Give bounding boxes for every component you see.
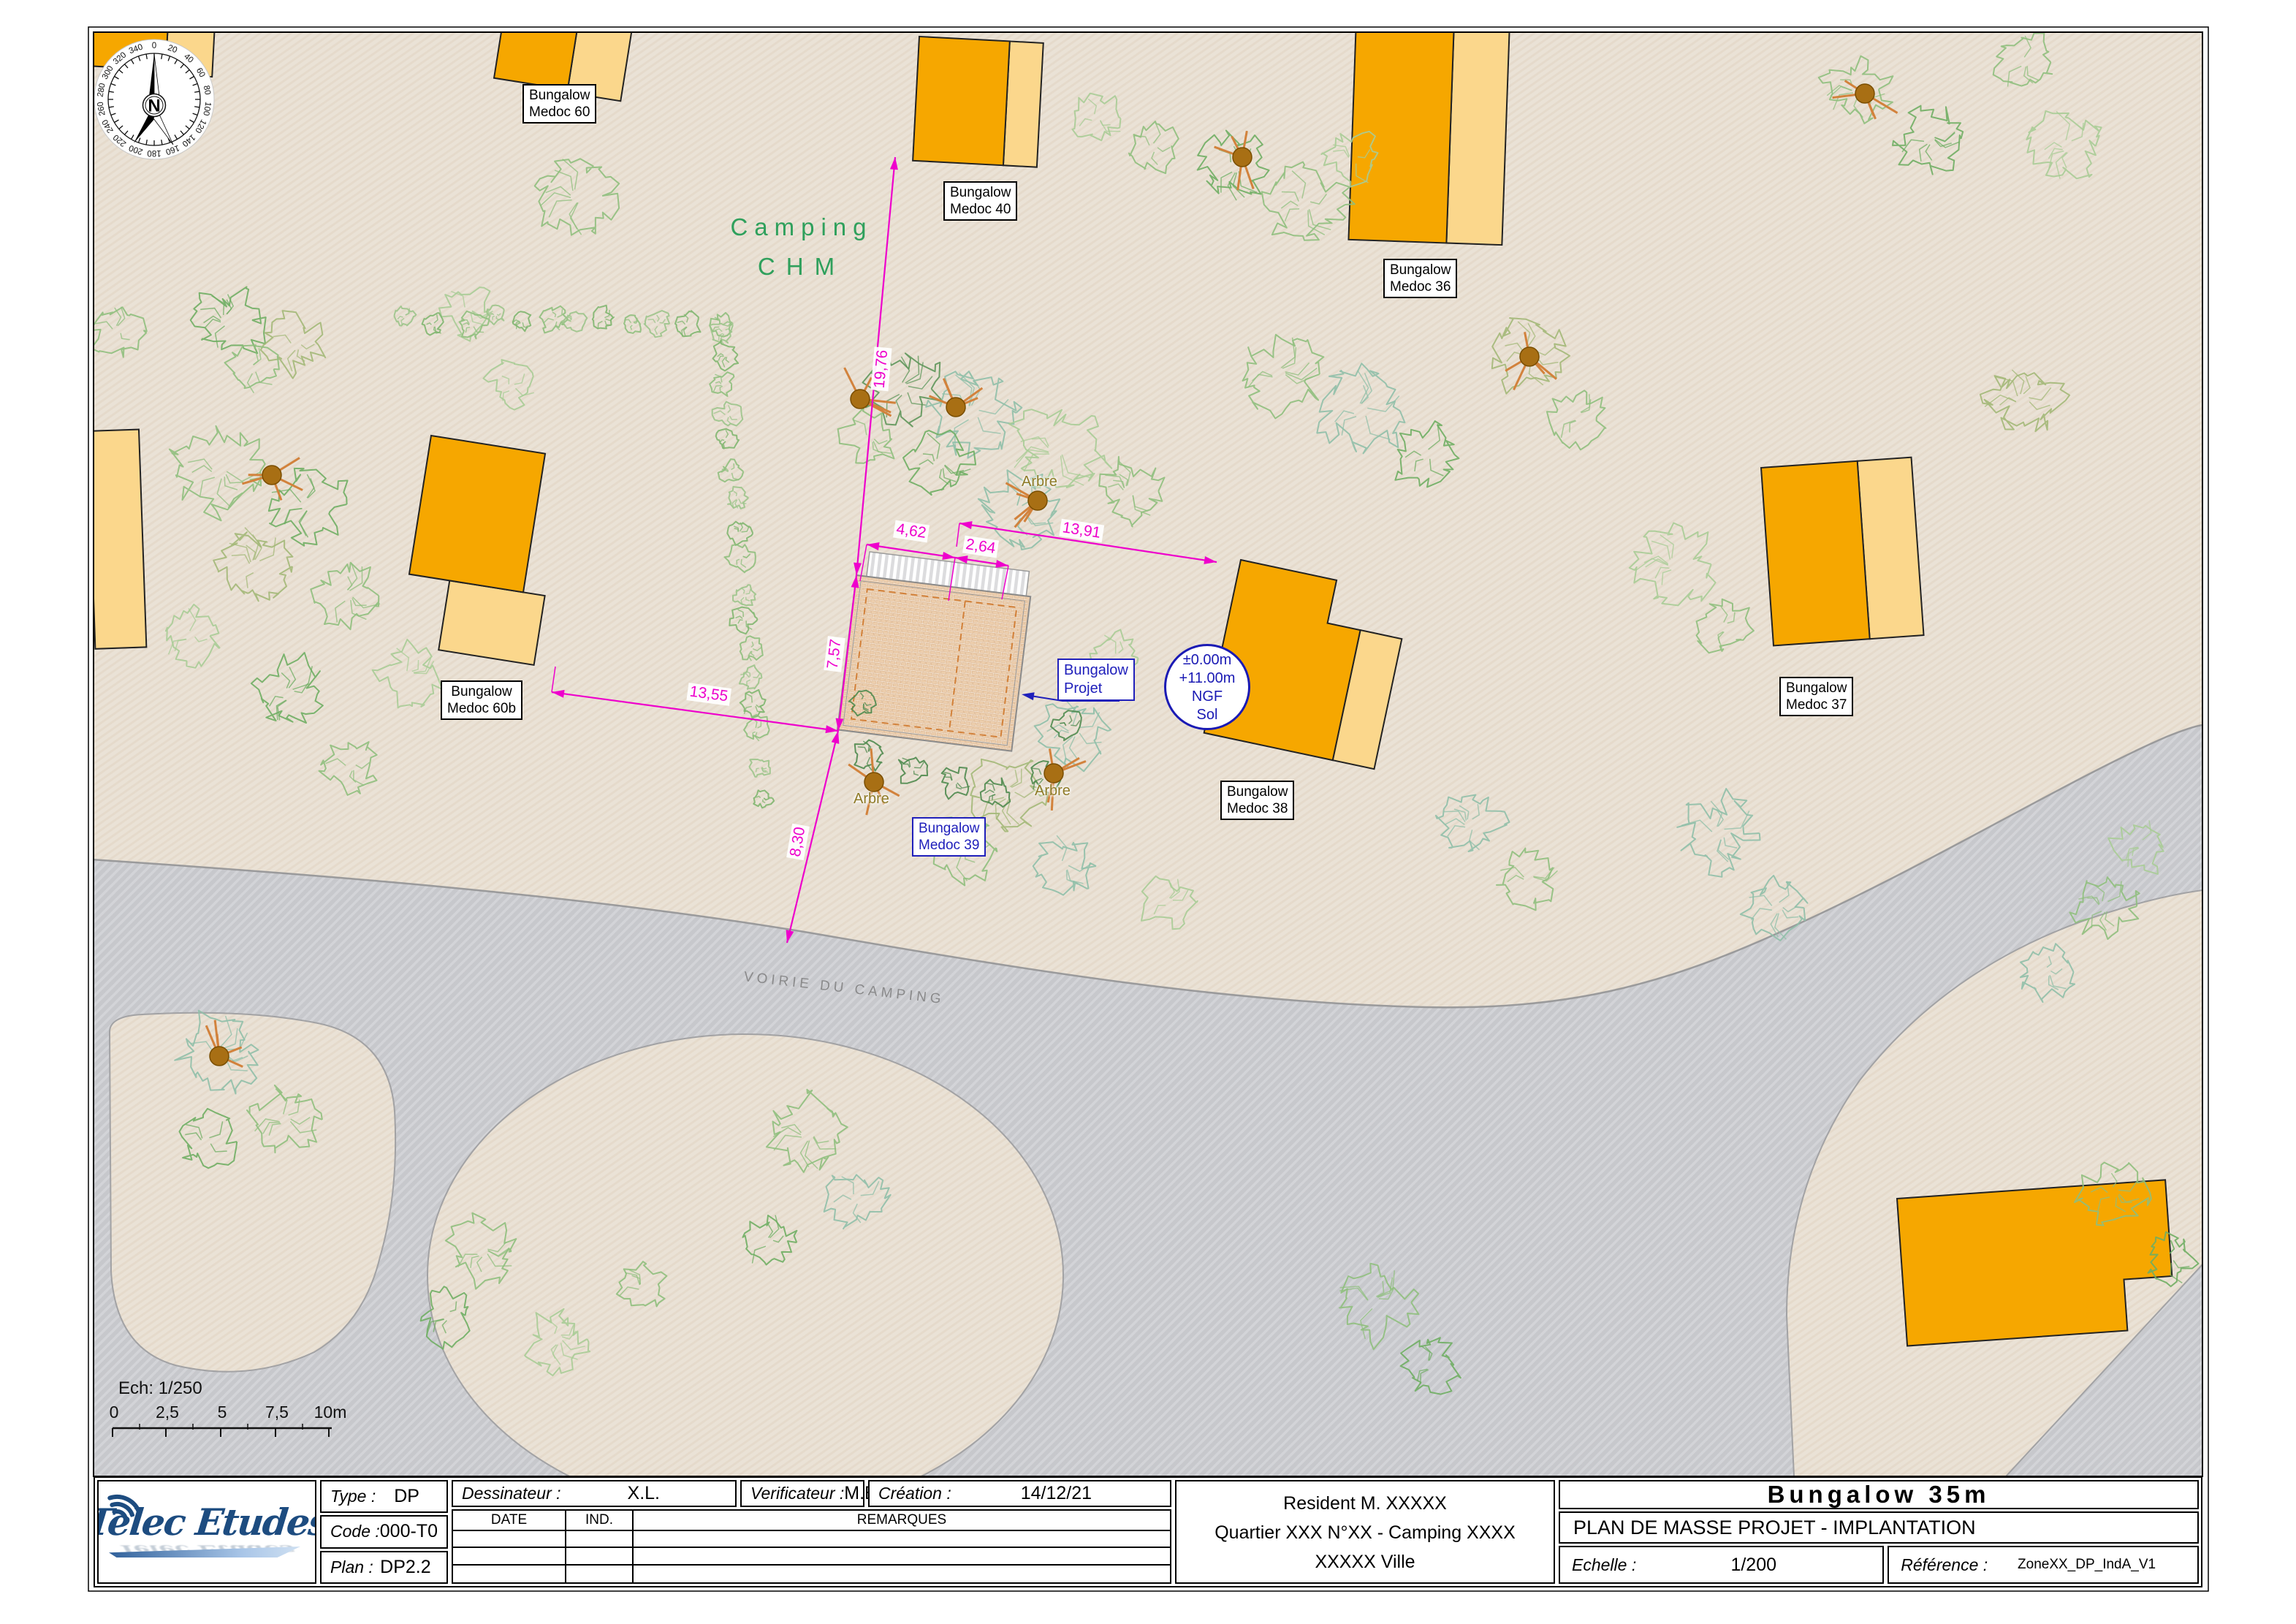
rev-cell bbox=[453, 1531, 566, 1548]
scale-bar: Ech: 1/250 02,557,510m bbox=[108, 1378, 357, 1446]
label-line: Medoc 60b bbox=[447, 700, 516, 717]
camping-title-line1: Camping bbox=[696, 213, 908, 241]
label-line: Bungalow bbox=[1390, 262, 1451, 278]
label-line: Medoc 38 bbox=[1227, 800, 1288, 817]
label-line: Medoc 60 bbox=[529, 104, 590, 121]
company-logo: Telec Etudes Telec Etudes bbox=[97, 1480, 316, 1584]
dessinateur-value: X.L. bbox=[628, 1483, 660, 1504]
scale-bar-ruler: 02,557,510m bbox=[108, 1402, 357, 1443]
plan-row: Plan : DP2.2 bbox=[320, 1551, 448, 1584]
tree-label: Arbre bbox=[1022, 474, 1057, 490]
dessinateur-label: Dessinateur : bbox=[462, 1484, 561, 1503]
level-badge: ±0.00m +11.00m NGF Sol bbox=[1164, 644, 1250, 730]
rev-header-date: DATE bbox=[453, 1511, 566, 1531]
logo-text: Telec Etudes bbox=[97, 1500, 316, 1544]
reference-value: ZoneXX_DP_IndA_V1 bbox=[2018, 1557, 2156, 1573]
label-bungalow-medoc-37: Bungalow Medoc 37 bbox=[1779, 677, 1853, 716]
compass-degree-label: 0 bbox=[152, 42, 156, 50]
rev-cell bbox=[453, 1566, 566, 1582]
tree-label: Arbre bbox=[1035, 783, 1071, 800]
building bbox=[1761, 458, 1924, 646]
label-bungalow-medoc-38: Bungalow Medoc 38 bbox=[1220, 781, 1294, 820]
scale-tick-label: 2,5 bbox=[156, 1403, 179, 1422]
rev-header-ind: IND. bbox=[566, 1511, 634, 1531]
echelle-box: Echelle : 1/200 bbox=[1559, 1546, 1884, 1584]
compass-degree-label: 80 bbox=[202, 85, 212, 96]
type-label: Type : bbox=[330, 1487, 376, 1506]
building bbox=[913, 37, 1044, 167]
type-code-plan-column: Type : DP Code : 000-T0 Plan : DP2.2 bbox=[320, 1480, 448, 1584]
rev-cell bbox=[566, 1531, 634, 1548]
client-city: XXXXX Ville bbox=[1176, 1547, 1554, 1576]
client-box: Resident M. XXXXX Quartier XXX N°XX - Ca… bbox=[1175, 1480, 1555, 1584]
client-name: Resident M. XXXXX bbox=[1176, 1489, 1554, 1518]
plan-value: DP2.2 bbox=[380, 1557, 430, 1578]
label-line: Bungalow bbox=[1227, 783, 1288, 800]
compass-degree-label: 180 bbox=[147, 148, 161, 157]
type-row: Type : DP bbox=[320, 1480, 448, 1513]
scale-tick-label: 5 bbox=[218, 1403, 227, 1422]
label-line: Bungalow bbox=[919, 820, 979, 837]
level-line: NGF bbox=[1166, 688, 1248, 706]
scale-tick-label: 10m bbox=[314, 1403, 347, 1422]
rev-cell bbox=[453, 1548, 566, 1565]
label-line: Medoc 37 bbox=[1786, 697, 1847, 713]
document-subtitle: PLAN DE MASSE PROJET - IMPLANTATION bbox=[1559, 1511, 2199, 1544]
rev-cell bbox=[634, 1566, 1170, 1582]
label-bungalow-medoc-40: Bungalow Medoc 40 bbox=[943, 181, 1017, 221]
label-line: Medoc 36 bbox=[1390, 278, 1451, 295]
label-line: Bungalow bbox=[447, 683, 516, 700]
label-bungalow-medoc-39: Bungalow Medoc 39 bbox=[912, 817, 986, 857]
level-line: ±0.00m bbox=[1166, 651, 1248, 669]
compass-rose: 0204060801001201401601802002202402602803… bbox=[94, 39, 214, 159]
grass-island bbox=[110, 1013, 395, 1372]
rev-cell bbox=[566, 1566, 634, 1582]
plan-label: Plan : bbox=[330, 1557, 373, 1577]
label-bungalow-projet: Bungalow Projet bbox=[1057, 659, 1135, 701]
verificateur-box: Verificateur : M.B. bbox=[740, 1480, 864, 1507]
echelle-label: Echelle : bbox=[1572, 1555, 1636, 1575]
building bbox=[1348, 19, 1509, 245]
label-line: Medoc 40 bbox=[950, 201, 1011, 218]
scale-tick-label: 7,5 bbox=[265, 1403, 289, 1422]
rev-cell bbox=[566, 1548, 634, 1565]
rev-cell bbox=[634, 1531, 1170, 1548]
plan-sheet: 0204060801001201401601802002202402602803… bbox=[0, 0, 2296, 1624]
label-bungalow-medoc-60: Bungalow Medoc 60 bbox=[522, 84, 596, 124]
rev-cell bbox=[634, 1548, 1170, 1565]
level-line: +11.00m bbox=[1166, 669, 1248, 688]
label-line: Bungalow bbox=[950, 184, 1011, 201]
scale-bar-label: Ech: 1/250 bbox=[118, 1378, 357, 1399]
scale-tick-label: 0 bbox=[110, 1403, 119, 1422]
creation-label: Création : bbox=[878, 1484, 951, 1503]
code-row: Code : 000-T0 bbox=[320, 1515, 448, 1548]
reference-box: Référence : ZoneXX_DP_IndA_V1 bbox=[1888, 1546, 2199, 1584]
camping-title-line2: CHM bbox=[696, 253, 908, 281]
reference-label: Référence : bbox=[1901, 1555, 1988, 1575]
tree-label: Arbre bbox=[854, 791, 889, 808]
creation-box: Création : 14/12/21 bbox=[868, 1480, 1171, 1507]
document-title-column: Bungalow 35m PLAN DE MASSE PROJET - IMPL… bbox=[1559, 1480, 2199, 1584]
echelle-value: 1/200 bbox=[1730, 1555, 1776, 1576]
compass-north-letter: N bbox=[148, 96, 160, 116]
grass-island bbox=[427, 1034, 1063, 1517]
creation-value: 14/12/21 bbox=[1021, 1483, 1092, 1504]
authors-revisions-column: Dessinateur : X.L. Verificateur : M.B. C… bbox=[452, 1480, 1171, 1584]
verificateur-label: Verificateur : bbox=[750, 1484, 844, 1503]
label-bungalow-medoc-60b: Bungalow Medoc 60b bbox=[441, 680, 522, 720]
camping-title: Camping CHM bbox=[696, 213, 908, 281]
label-bungalow-medoc-36: Bungalow Medoc 36 bbox=[1383, 259, 1457, 298]
type-value: DP bbox=[394, 1486, 419, 1507]
label-line: Medoc 39 bbox=[919, 837, 979, 854]
building bbox=[88, 430, 146, 649]
label-line: Bungalow bbox=[529, 87, 590, 104]
document-title: Bungalow 35m bbox=[1559, 1480, 2199, 1509]
project-bungalow-footprint bbox=[837, 550, 1033, 751]
dessinateur-box: Dessinateur : X.L. bbox=[452, 1480, 737, 1507]
label-line: Bungalow bbox=[1064, 661, 1128, 680]
client-address: Quartier XXX N°XX - Camping XXXX bbox=[1176, 1518, 1554, 1547]
code-value: 000-T0 bbox=[380, 1521, 438, 1542]
project-bungalow bbox=[837, 550, 1033, 751]
level-line: Sol bbox=[1166, 706, 1248, 724]
title-block: Telec Etudes Telec Etudes Type : DP Code… bbox=[94, 1476, 2202, 1587]
code-label: Code : bbox=[330, 1522, 380, 1541]
label-line: Projet bbox=[1064, 680, 1128, 698]
rev-header-remarques: REMARQUES bbox=[634, 1511, 1170, 1531]
label-line: Bungalow bbox=[1786, 680, 1847, 697]
dimension-label: 19,76 bbox=[870, 347, 892, 391]
revision-table: DATE IND. REMARQUES bbox=[452, 1509, 1171, 1584]
